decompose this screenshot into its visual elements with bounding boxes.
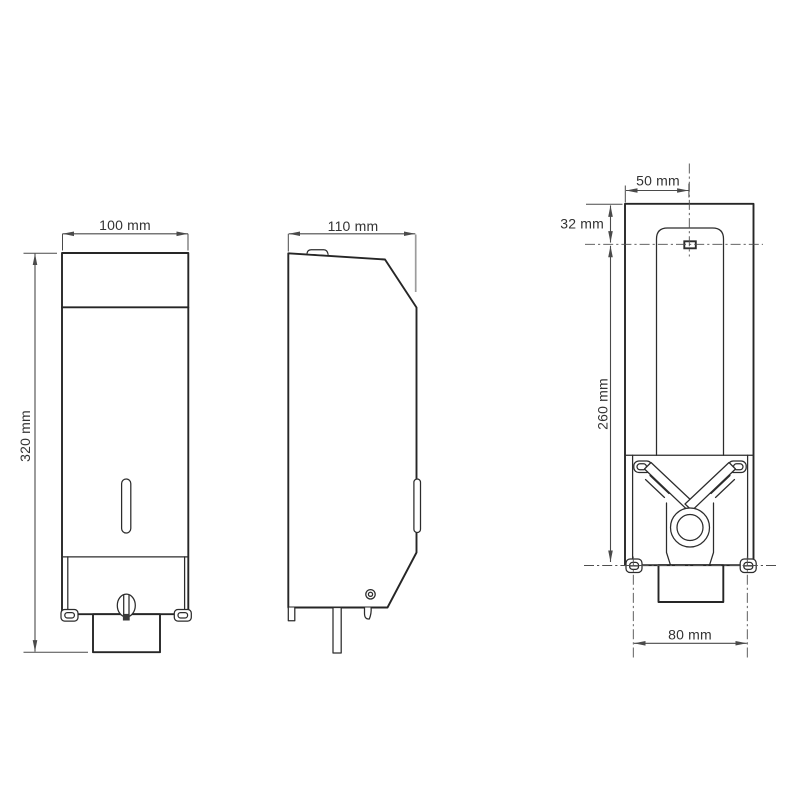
front-height-label: 320 mm [17,410,33,462]
rear-mount-height-dimension: 260 mm [595,246,611,562]
rear-mount-width-label: 80 mm [668,627,712,643]
dispenser-technical-drawing: 100 mm 320 mm 110 mm [0,0,800,800]
pump-mechanism [625,455,754,565]
front-width-dimension: 100 mm [63,217,189,251]
rear-top-offset-label: 32 mm [560,216,604,232]
side-foot [288,608,295,621]
front-view: 100 mm 320 mm [17,217,191,652]
sight-window [122,479,131,533]
side-body-outline [288,253,416,607]
lock-knob-catch [123,614,130,621]
front-clip-right [174,610,191,622]
side-depth-label: 110 mm [328,218,379,234]
side-window-edge [414,479,421,533]
front-height-dimension: 320 mm [17,253,88,652]
dispense-spout-rear [659,565,724,602]
rear-mount-width-dimension: 80 mm [634,627,747,644]
rear-mount-height-label: 260 mm [595,378,611,430]
rear-center-offset-label: 50 mm [636,173,680,189]
side-screw [366,590,375,599]
mounting-keyhole [684,241,696,248]
rear-top-offset-dimension: 32 mm [560,204,622,242]
soap-bottle [657,228,724,455]
front-width-label: 100 mm [99,217,151,233]
rear-view: 50 mm 32 mm 260 mm 80 mm [560,164,776,658]
side-view: 110 mm [288,218,420,653]
side-hook [365,608,372,620]
dispense-nozzle-side [333,608,341,654]
pump-piston-outer [671,508,710,547]
front-clip-left [61,610,78,622]
rear-center-offset-dimension: 50 mm [625,173,689,203]
